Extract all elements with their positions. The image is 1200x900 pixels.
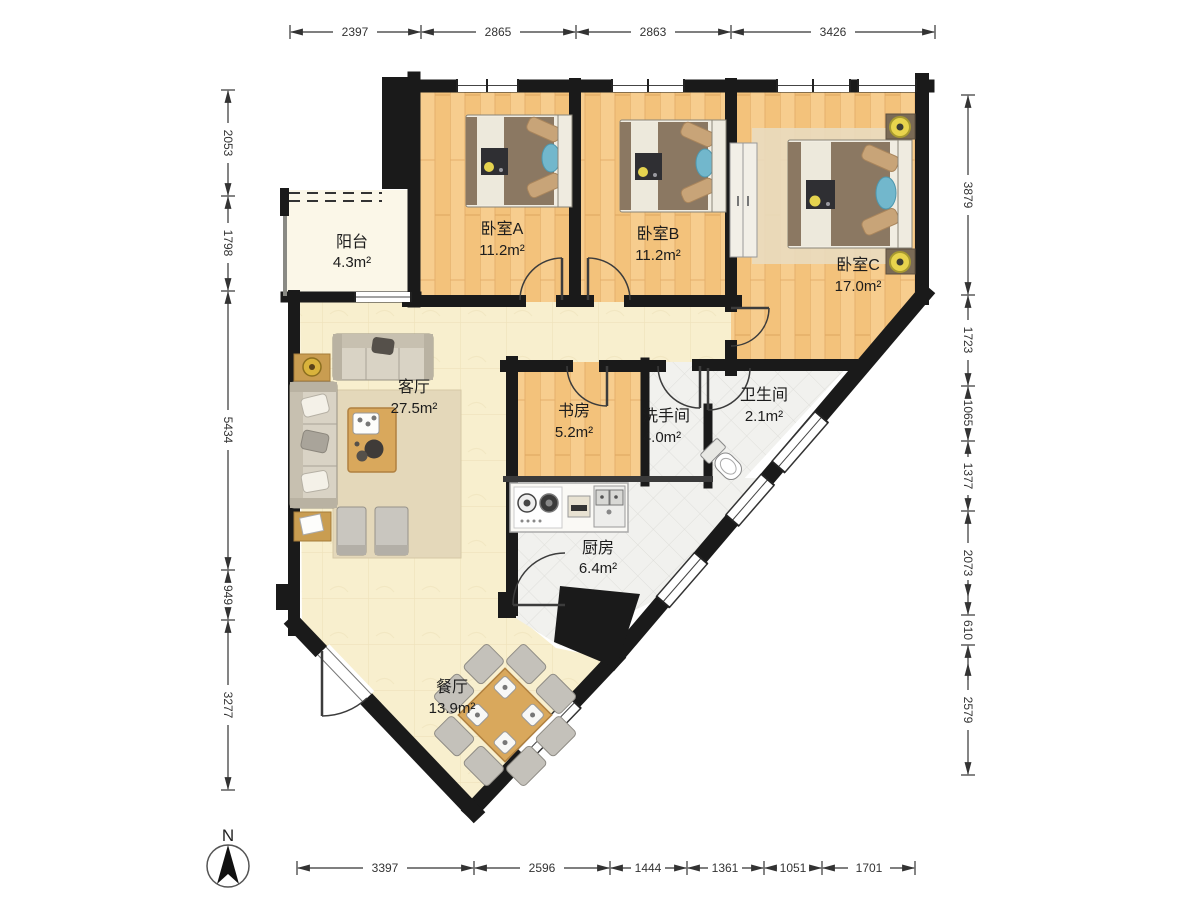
window-bedroom-a — [457, 79, 518, 92]
dim-left-2: 5434 — [221, 417, 235, 444]
window-balcony-door — [355, 292, 411, 302]
dim-left-3: 949 — [221, 585, 235, 605]
living-sofa-top — [333, 334, 433, 380]
dim-left-4: 3277 — [221, 692, 235, 719]
dim-right-5: 610 — [961, 620, 975, 640]
dim-right-1: 1723 — [961, 327, 975, 354]
dim-bottom-2: 1444 — [635, 861, 662, 875]
washroom-area: 4.0m² — [643, 429, 681, 446]
wall-topleft-chunk — [382, 77, 420, 189]
north-label: N — [222, 826, 234, 845]
balcony-name: 阳台 — [336, 233, 368, 251]
floor-plan-canvas: 阳台 4.3m² 卧室A 11.2m² 卧室B 11.2m² 卧室C 17.0m… — [0, 0, 1200, 900]
washroom-name: 洗手间 — [642, 407, 690, 425]
dining-room-area: 13.9m² — [429, 700, 476, 717]
dining-room-name: 餐厅 — [436, 678, 468, 696]
window-bedroom-c-2 — [858, 79, 916, 92]
bedroom-b-name: 卧室B — [637, 225, 680, 243]
dim-right-2: 1065 — [961, 400, 975, 427]
dim-right-3: 1377 — [961, 463, 975, 490]
bedroom-c-name: 卧室C — [836, 256, 880, 274]
living-armchair-1 — [337, 507, 366, 555]
toilet-area: 2.1m² — [745, 408, 783, 425]
balcony-area: 4.3m² — [333, 254, 371, 271]
bedroom-b-bed — [620, 120, 726, 212]
dim-left-1: 1798 — [221, 230, 235, 257]
toilet-name: 卫生间 — [740, 386, 788, 404]
bedroom-a-name: 卧室A — [481, 220, 524, 238]
bedroom-c-wardrobe — [730, 143, 757, 257]
dim-right-6: 2579 — [961, 697, 975, 724]
dim-top-3: 3426 — [820, 25, 847, 39]
bedroom-b-area: 11.2m² — [635, 247, 681, 264]
dim-top-0: 2397 — [342, 25, 369, 39]
bedroom-c-bed — [788, 140, 912, 248]
wall-left-step — [276, 584, 300, 610]
floor-plan-page: 阳台 4.3m² 卧室A 11.2m² 卧室B 11.2m² 卧室C 17.0m… — [0, 0, 1200, 900]
study-name: 书房 — [558, 402, 590, 420]
kitchen-name: 厨房 — [582, 539, 614, 557]
dim-top-1: 2865 — [485, 25, 512, 39]
dim-bottom-0: 3397 — [372, 861, 399, 875]
dimensions-left: 2053 1798 5434 949 3277 — [221, 90, 235, 790]
bedroom-a-bed — [466, 115, 572, 207]
living-room-name: 客厅 — [398, 378, 430, 396]
dim-bottom-5: 1701 — [856, 861, 883, 875]
living-side-table-top — [294, 354, 330, 381]
living-room-area: 27.5m² — [391, 400, 438, 417]
dimensions-bottom: 3397 2596 1444 1361 1051 1701 — [297, 861, 915, 875]
living-side-table-bottom — [294, 512, 331, 541]
living-coffee-table — [348, 408, 396, 472]
kitchen-counter — [510, 483, 628, 532]
window-bedroom-b — [612, 79, 684, 92]
kitchen-area: 6.4m² — [579, 560, 617, 577]
study-area: 5.2m² — [555, 424, 593, 441]
study-floor — [506, 362, 646, 480]
bedroom-a-area: 11.2m² — [479, 242, 525, 259]
bedroom-c-nightstand-bottom — [886, 249, 915, 274]
dimensions-top: 2397 2865 2863 3426 — [290, 25, 935, 39]
dim-top-2: 2863 — [640, 25, 667, 39]
living-armchair-2 — [375, 507, 408, 555]
north-arrow-icon — [217, 845, 239, 884]
dim-bottom-3: 1361 — [712, 861, 739, 875]
dim-right-0: 3879 — [961, 182, 975, 209]
north-compass: N — [207, 826, 249, 887]
window-bedroom-c-1 — [777, 79, 850, 92]
dim-bottom-4: 1051 — [780, 861, 807, 875]
dim-right-4: 2073 — [961, 550, 975, 577]
living-sofa-left — [290, 382, 337, 508]
bedroom-c-nightstand-top — [886, 114, 915, 139]
dim-left-0: 2053 — [221, 130, 235, 157]
dim-bottom-1: 2596 — [529, 861, 556, 875]
bedroom-c-area: 17.0m² — [835, 278, 882, 295]
dimensions-right: 3879 1723 1065 1377 2073 610 2579 — [961, 95, 975, 775]
